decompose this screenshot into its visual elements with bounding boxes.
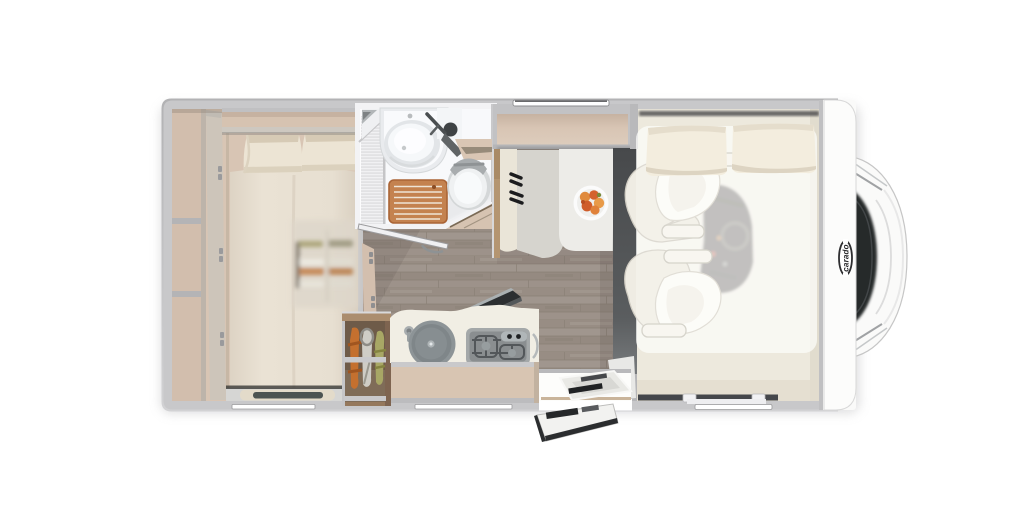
svg-text:carado: carado (842, 244, 851, 271)
